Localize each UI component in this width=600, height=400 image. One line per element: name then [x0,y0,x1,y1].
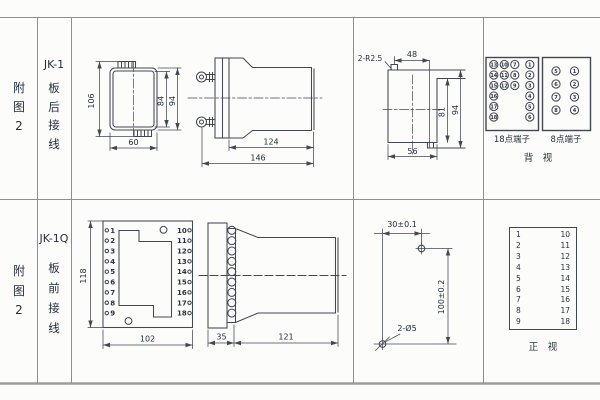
terminal-circle [105,260,108,263]
terminal-number: 5 [516,275,521,283]
terminal-number: 15 [177,279,187,287]
terminal-number: 12 [177,248,187,256]
terminal-number: 10 [501,62,508,68]
wiring-char: 板 [37,79,71,98]
terminal-circle [105,291,108,294]
terminal-number: 13 [560,264,570,272]
terminal-number: 13 [177,258,187,266]
terminal-bump [228,299,236,307]
dim-label-35: 35 [216,333,226,342]
row1-figure-label: 附 图 2 [6,79,32,136]
terminal-bump [228,257,236,265]
jk1-side-view-drawing [188,58,322,167]
figure-label-char: 附 [6,79,32,98]
terminal-bump [228,278,236,286]
terminal-number: 14 [560,275,570,283]
terminal-number: 6 [516,286,521,294]
terminal-number: 11 [501,73,508,79]
terminal-table-row: 615 [510,286,576,294]
dim-label-118: 118 [79,268,88,283]
terminal-number: 12 [501,83,508,89]
terminal-number: 14 [490,73,497,79]
terminal-table-row: 817 [510,307,576,315]
terminal-number: 3 [110,248,115,256]
terminal-circle [105,229,108,232]
terminal-circle [105,301,108,304]
terminal-number: 2 [516,242,521,250]
terminal-number: 11 [177,237,187,245]
terminal-table-row: 716 [510,296,576,304]
terminal-number: 4 [573,108,577,114]
terminal-number: 7 [554,95,558,101]
row2-model-label: JK-1Q [35,232,73,245]
terminal-number: 5 [528,104,532,110]
dim-label-56: 56 [407,147,417,156]
terminal-number: 16 [177,289,187,297]
terminal-number: 6 [110,279,115,287]
terminal-number: 3 [516,253,521,261]
terminal-table: 110211312413514615716817918 [509,227,577,330]
dim-label-84: 84 [157,96,166,106]
terminal-number: 9 [110,310,115,318]
terminal-number: 6 [554,82,558,88]
back-view-caption: 背 视 [503,150,573,164]
jk1q-side-view-drawing [199,223,346,347]
terminal-number: 7 [516,296,521,304]
terminal-number: 18 [560,318,570,326]
terminal-number: 13 [490,62,497,68]
terminal-number: 14 [177,268,187,276]
dim-label-60: 60 [128,138,138,147]
terminal-number: 2 [528,73,532,79]
figure-label-char: 图 [6,282,32,302]
terminal-circle [105,311,108,314]
terminal-number: 1 [110,227,115,235]
dim-label-81: 81 [438,107,447,117]
terminal-number: 8 [516,307,521,315]
dim-label-94-front: 94 [168,96,177,106]
terminal-number: 2 [573,82,577,88]
terminal-table-row: 211 [510,242,576,250]
terminal-8pt-caption: 8点端子 [540,133,592,145]
terminal-number: 6 [528,115,532,121]
relay-mounting-figure-page: 106 60 84 94 124 146 [0,0,600,400]
terminal-table-row: 110 [510,231,576,239]
terminal-number: 4 [516,264,521,272]
terminal-circle [188,311,191,314]
wiring-char: 线 [37,135,71,154]
wiring-char: 接 [37,116,71,135]
terminal-table-row: 312 [510,253,576,261]
figure-label-char: 2 [6,301,32,321]
terminal-number: 1 [516,231,521,239]
terminal-bump [228,309,236,317]
dim-label-106: 106 [87,93,96,108]
front-view-caption: 正 视 [509,339,577,353]
row1-model-label: JK-1 [37,58,71,71]
wiring-char: 后 [37,98,71,117]
dim-label-121: 121 [278,333,293,342]
terminal-number: 2 [110,237,115,245]
terminal-circle [105,249,108,252]
terminal-number: 9 [513,83,517,89]
terminal-number: 8 [110,299,115,307]
terminal-circle [188,260,191,263]
terminal-circle [105,239,108,242]
figure-label-char: 图 [6,98,32,117]
terminal-number: 16 [560,296,570,304]
terminal-circle [188,229,191,232]
figure-label-char: 2 [6,117,32,136]
terminal-bump [228,226,236,234]
dim-label-48: 48 [407,50,417,59]
terminal-circle [188,249,191,252]
dim-label-102: 102 [140,335,155,344]
dim-label-94-cutout: 94 [451,105,460,115]
terminal-number: 18 [490,115,497,121]
terminal-bump [228,288,236,296]
dim-label-146: 146 [250,154,265,163]
row1-wiring-label: 板 后 接 线 [37,79,71,153]
dim-label-100: 100±0.2 [437,280,446,315]
dim-label-124: 124 [263,138,278,147]
terminal-number: 3 [528,83,532,89]
terminal-number: 15 [490,83,497,89]
terminal-number: 17 [177,299,187,307]
terminal-diagram-18pt: 131415161718101112789123456 [486,58,539,131]
terminal-number: 7 [513,62,517,68]
terminal-circle [188,301,191,304]
wiring-char: 线 [37,318,71,338]
terminal-number: 7 [110,289,115,297]
terminal-number: 11 [560,242,570,250]
terminal-circle [105,280,108,283]
wiring-char: 接 [37,298,71,318]
terminal-diagram-8pt: 56781234 [543,58,591,131]
terminal-number: 16 [490,94,497,100]
terminal-bump [228,237,236,245]
wiring-char: 前 [37,278,71,298]
terminal-18pt-caption: 18点端子 [482,133,542,145]
terminal-number: 15 [560,286,570,294]
terminal-number: 10 [177,227,187,235]
terminal-bump [228,247,236,255]
terminal-number: 4 [110,258,115,266]
terminal-number: 1 [573,69,577,75]
terminal-circle [188,291,191,294]
terminal-number: 5 [554,69,558,75]
terminal-bump [228,268,236,276]
row2-wiring-label: 板 前 接 线 [37,258,71,338]
dim-label-holes: 2-Ø5 [397,323,416,333]
terminal-circle [188,270,191,273]
dim-label-30: 30±0.1 [387,220,417,229]
wiring-char: 板 [37,258,71,278]
terminal-number: 18 [177,310,187,318]
terminal-number: 3 [573,95,577,101]
terminal-number: 12 [560,253,570,261]
terminal-number: 10 [560,231,570,239]
terminal-number: 5 [110,268,115,276]
terminal-circle [188,280,191,283]
terminal-circle [188,239,191,242]
terminal-table-row: 413 [510,264,576,272]
terminal-circle [105,270,108,273]
terminal-number: 17 [560,307,570,315]
terminal-number: 17 [490,104,497,110]
terminal-number: 8 [554,108,558,114]
terminal-table-row: 514 [510,275,576,283]
terminal-number: 9 [516,318,521,326]
terminal-number: 8 [513,73,517,79]
terminal-table-row: 918 [510,318,576,326]
terminal-number: 1 [528,62,532,68]
dim-label-radius: 2-R2.5 [358,54,383,63]
jk1q-front-view-drawing: 110211312413514615716817918 [88,221,193,349]
terminal-number: 4 [528,94,532,100]
figure-label-char: 附 [6,262,32,282]
row2-figure-label: 附 图 2 [6,262,32,321]
